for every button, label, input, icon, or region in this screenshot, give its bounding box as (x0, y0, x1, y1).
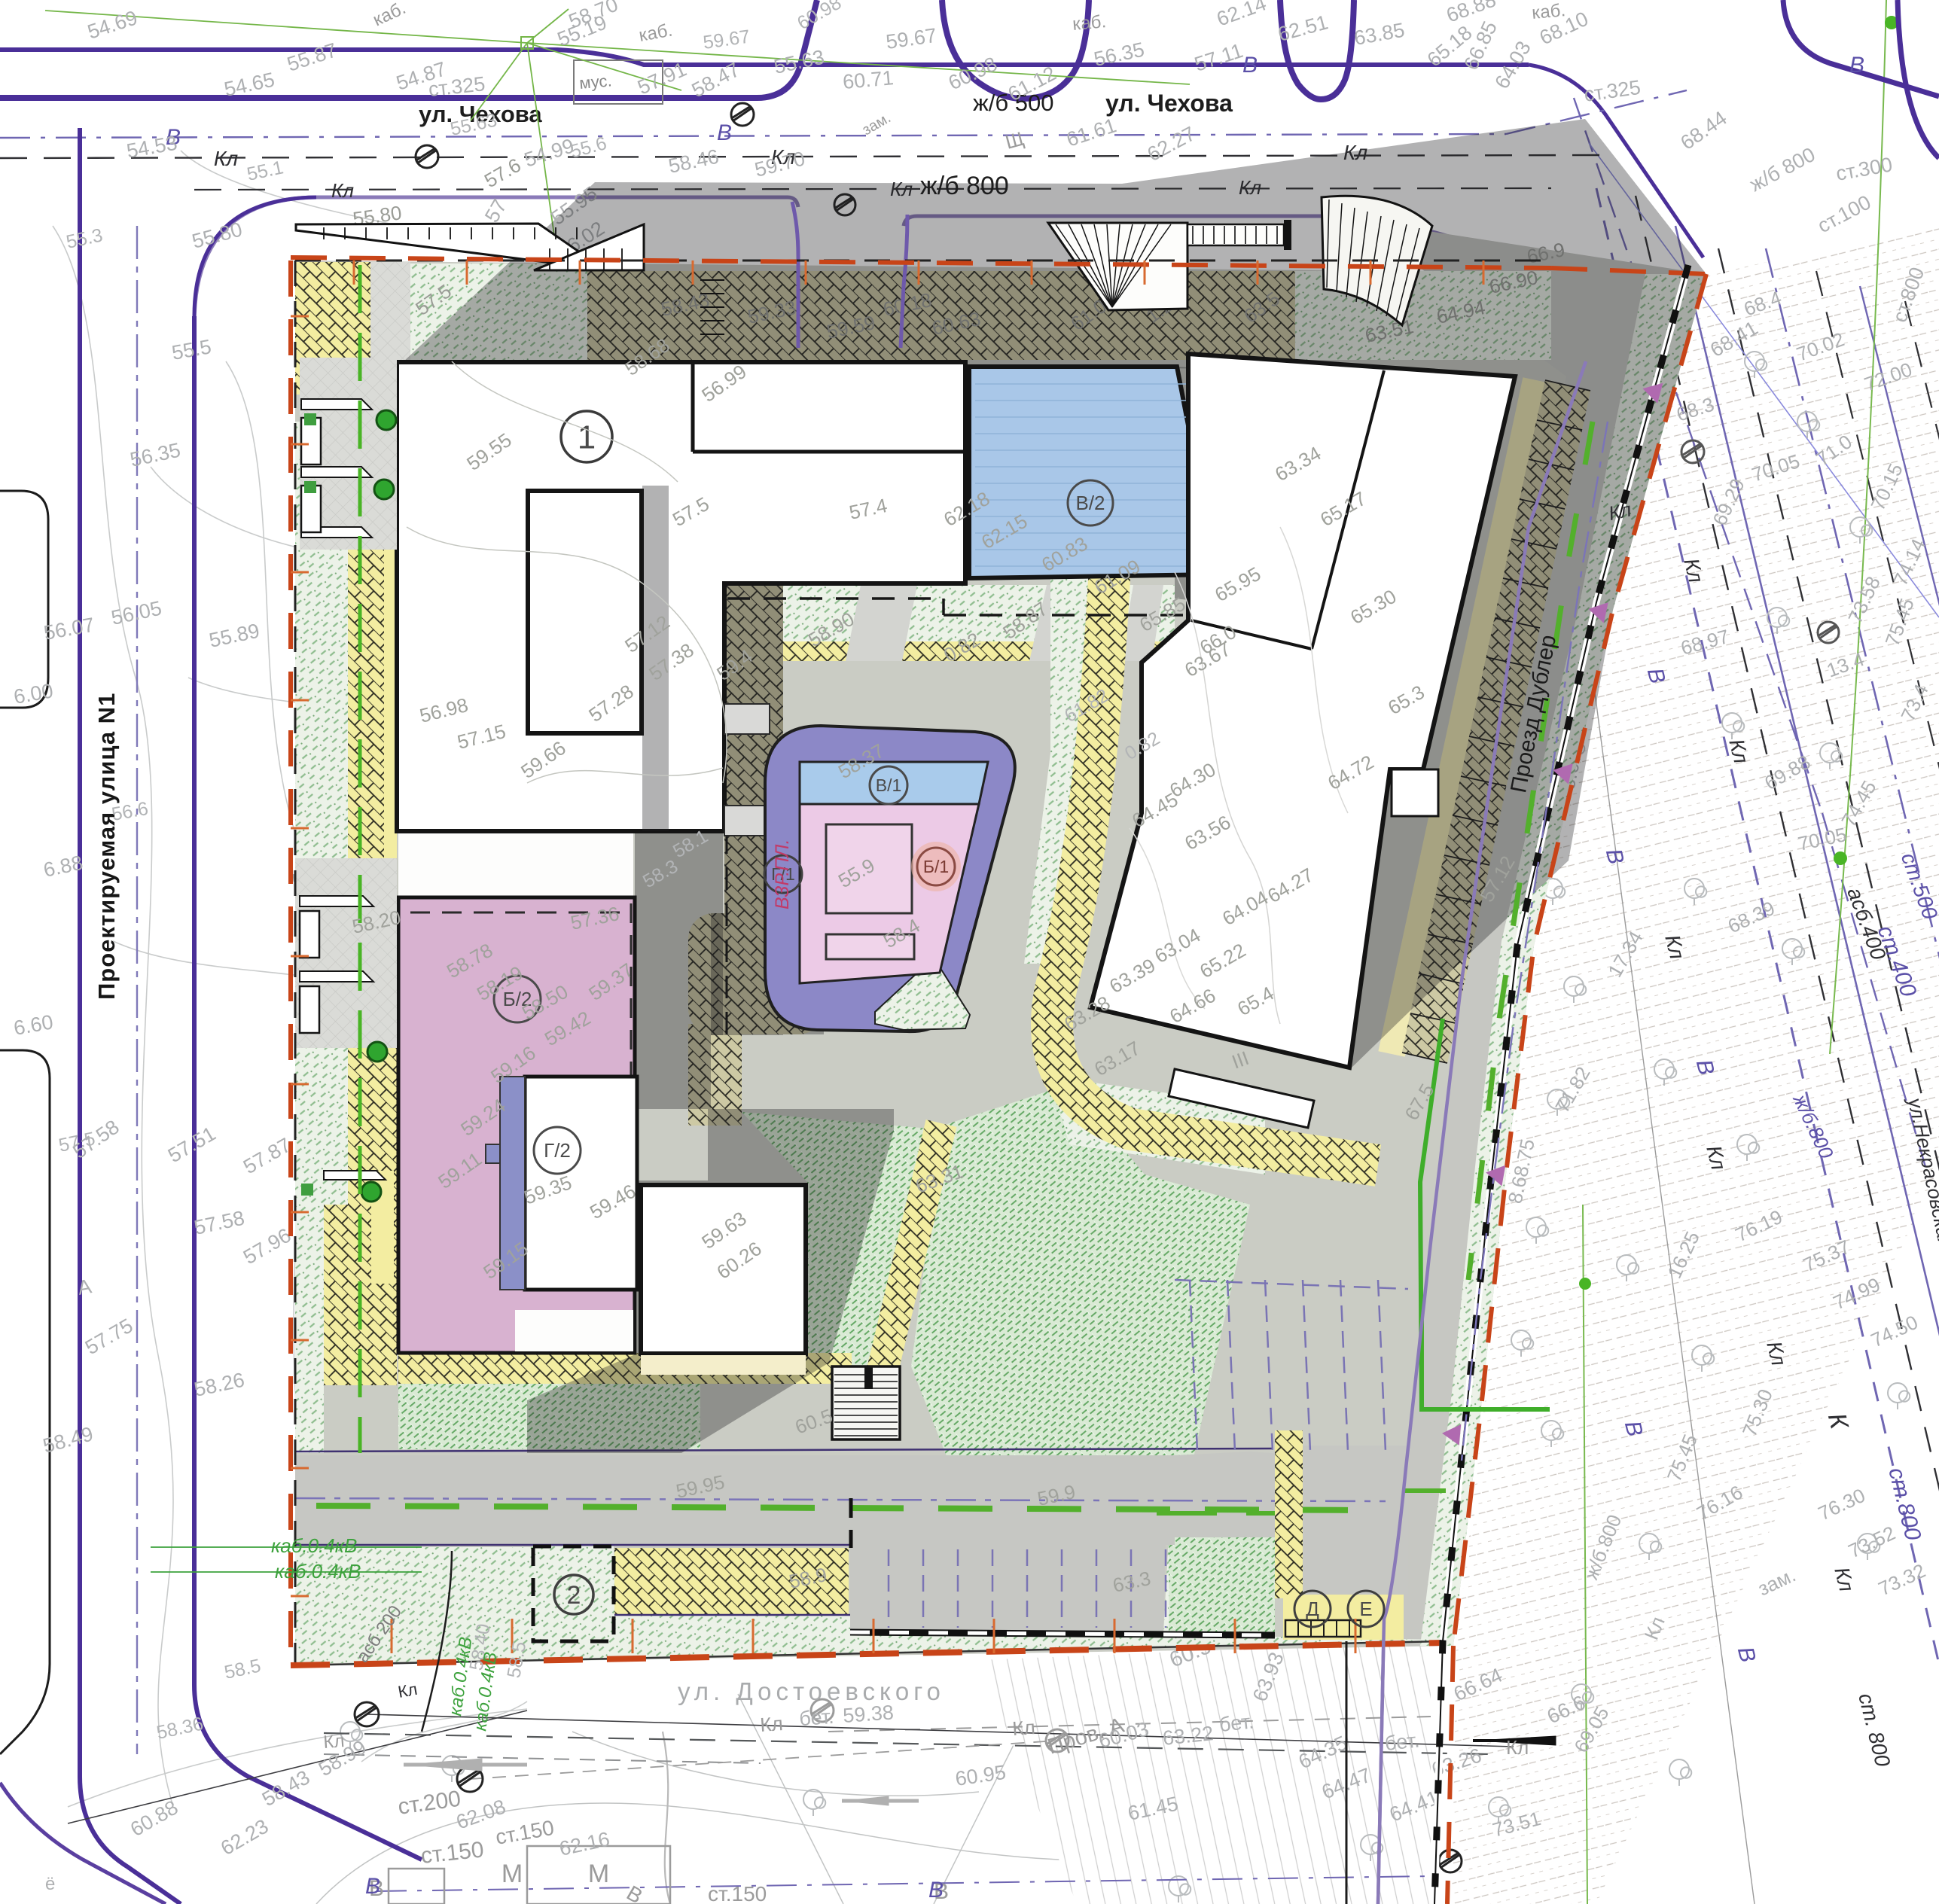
svg-text:ВЗР.ПЛ.: ВЗР.ПЛ. (772, 839, 793, 909)
svg-text:Кл: Кл (1506, 1736, 1529, 1759)
svg-text:В: В (928, 1878, 944, 1902)
svg-text:бет.: бет. (1383, 1729, 1420, 1755)
svg-text:Проектируемая улица N1: Проектируемая улица N1 (93, 693, 120, 1000)
svg-text:каб.0.4кВ: каб.0.4кВ (275, 1560, 361, 1583)
svg-text:Г/2: Г/2 (544, 1139, 571, 1162)
svg-text:Кл: Кл (331, 179, 354, 202)
svg-text:каб.: каб. (1072, 11, 1107, 35)
svg-text:бет.: бет. (1218, 1710, 1255, 1736)
svg-text:В: В (365, 1874, 380, 1899)
svg-text:М: М (588, 1860, 609, 1888)
svg-text:Кл: Кл (1011, 1716, 1035, 1740)
svg-text:Кл: Кл (397, 1680, 419, 1701)
svg-text:1: 1 (578, 419, 596, 455)
svg-text:В: В (1849, 53, 1864, 78)
svg-text:В/2: В/2 (1075, 492, 1105, 514)
svg-text:2: 2 (567, 1581, 581, 1610)
svg-text:ул. Достоевского: ул. Достоевского (678, 1677, 945, 1705)
svg-text:Кл: Кл (214, 147, 239, 170)
svg-text:В/1: В/1 (876, 775, 902, 795)
svg-text:ё: ё (45, 1874, 55, 1894)
svg-text:ул. Чехова: ул. Чехова (1105, 90, 1233, 117)
svg-text:Д: Д (1306, 1598, 1319, 1620)
svg-text:каб.0.4кВ: каб.0.4кВ (271, 1534, 357, 1557)
svg-text:Е: Е (1359, 1598, 1372, 1620)
svg-text:В: В (1242, 53, 1258, 78)
svg-text:59.38: 59.38 (842, 1701, 895, 1727)
svg-text:В: В (717, 120, 732, 145)
svg-text:бет.: бет. (798, 1705, 834, 1730)
svg-text:Кл: Кл (759, 1712, 783, 1736)
svg-text:Кл: Кл (323, 1731, 346, 1753)
svg-text:60.71: 60.71 (842, 66, 895, 93)
svg-text:мус.: мус. (578, 71, 612, 93)
svg-text:М: М (502, 1860, 523, 1888)
svg-text:Б/1: Б/1 (923, 857, 949, 876)
svg-text:ст.150: ст.150 (708, 1882, 767, 1904)
